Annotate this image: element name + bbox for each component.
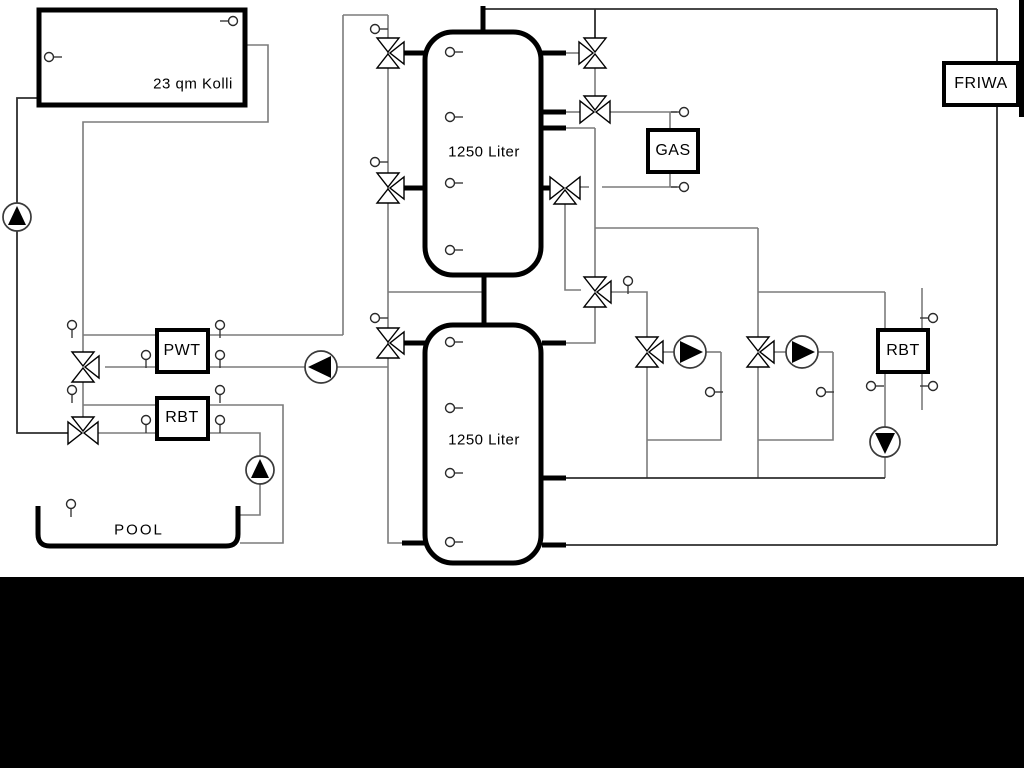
sensor-icon (867, 382, 885, 391)
sensor-icon (371, 25, 389, 34)
three-way-valve-icon (584, 277, 611, 307)
letterbox-right-strip (1019, 0, 1024, 117)
gas-label: GAS (655, 142, 690, 160)
tank-lower-label: 1250 Liter (448, 432, 520, 449)
pump-icon (786, 336, 818, 368)
three-way-valve-icon (377, 173, 404, 203)
pump-icon (305, 351, 337, 383)
pump-icon (246, 456, 274, 484)
tank-upper-label: 1250 Liter (448, 144, 520, 161)
rbt-left-label: RBT (165, 409, 199, 427)
sensor-icon (216, 351, 225, 369)
sensor-icon (371, 158, 389, 167)
pipe-line (566, 306, 595, 343)
pump-icon (870, 427, 900, 457)
sensor-icon (68, 386, 77, 404)
three-way-valve-icon (377, 328, 404, 358)
sensor-icon (67, 500, 76, 518)
sensor-icon (142, 416, 151, 434)
sensor-icon (68, 321, 77, 339)
pump-icon (674, 336, 706, 368)
sensor-icon (671, 183, 689, 192)
rbt-right-label: RBT (886, 342, 920, 360)
three-way-valve-icon (68, 417, 98, 444)
pipe-line (388, 15, 403, 543)
letterbox-bottom (0, 577, 1024, 768)
three-way-valve-icon (72, 352, 99, 382)
sensor-icon (216, 386, 225, 404)
piping-layer (0, 0, 1024, 768)
sensor-icon (371, 314, 389, 323)
three-way-valve-icon (579, 38, 606, 68)
sensor-icon (671, 108, 689, 117)
pipe-line (565, 202, 581, 290)
pool-label: POOL (114, 522, 164, 539)
pump-icon (3, 203, 31, 231)
three-way-valve-icon (636, 337, 663, 367)
three-way-valve-icon (747, 337, 774, 367)
schematic-canvas: 23 qm Kolli 1250 Liter 1250 Liter PWT RB… (0, 0, 1024, 768)
sensor-icon (142, 351, 151, 369)
sensor-icon (216, 416, 225, 434)
friwa-label: FRIWA (954, 75, 1007, 93)
three-way-valve-icon (377, 38, 404, 68)
three-way-valve-icon (580, 96, 610, 123)
collector-label: 23 qm Kolli (153, 76, 233, 93)
pipe-line (609, 292, 647, 338)
pipe-line (17, 98, 69, 433)
sensor-icon (817, 388, 835, 397)
three-way-valve-icon (550, 177, 580, 204)
pipe-line (97, 433, 260, 515)
pwt-label: PWT (163, 342, 200, 360)
